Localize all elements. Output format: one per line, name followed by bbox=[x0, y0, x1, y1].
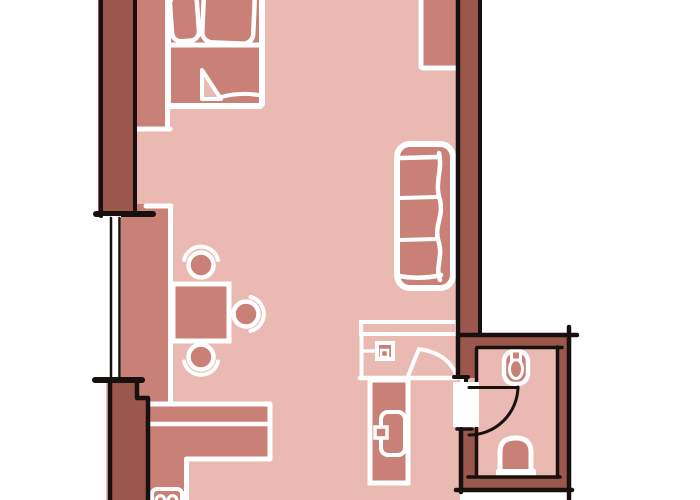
bed bbox=[168, 0, 262, 106]
bathroom-sink bbox=[496, 438, 536, 478]
wardrobe bbox=[421, 0, 459, 68]
nightstand-strip bbox=[136, 0, 170, 130]
chair-right bbox=[234, 297, 264, 331]
left-wall-lower bbox=[95, 380, 149, 500]
window-counter bbox=[121, 204, 171, 404]
chair-bottom bbox=[184, 345, 218, 375]
left-wall-window bbox=[103, 216, 121, 379]
dining-table bbox=[173, 284, 229, 341]
chair-top bbox=[184, 247, 218, 278]
right-wall bbox=[454, 0, 481, 385]
toilet bbox=[504, 351, 528, 384]
floor-plan-drawing bbox=[0, 0, 700, 500]
tall-cabinet bbox=[370, 380, 408, 483]
stove bbox=[152, 489, 182, 500]
pillow-right bbox=[202, 0, 255, 44]
sofa bbox=[397, 144, 453, 288]
floor-plan-canvas bbox=[0, 0, 700, 500]
pillow-left bbox=[169, 0, 199, 42]
